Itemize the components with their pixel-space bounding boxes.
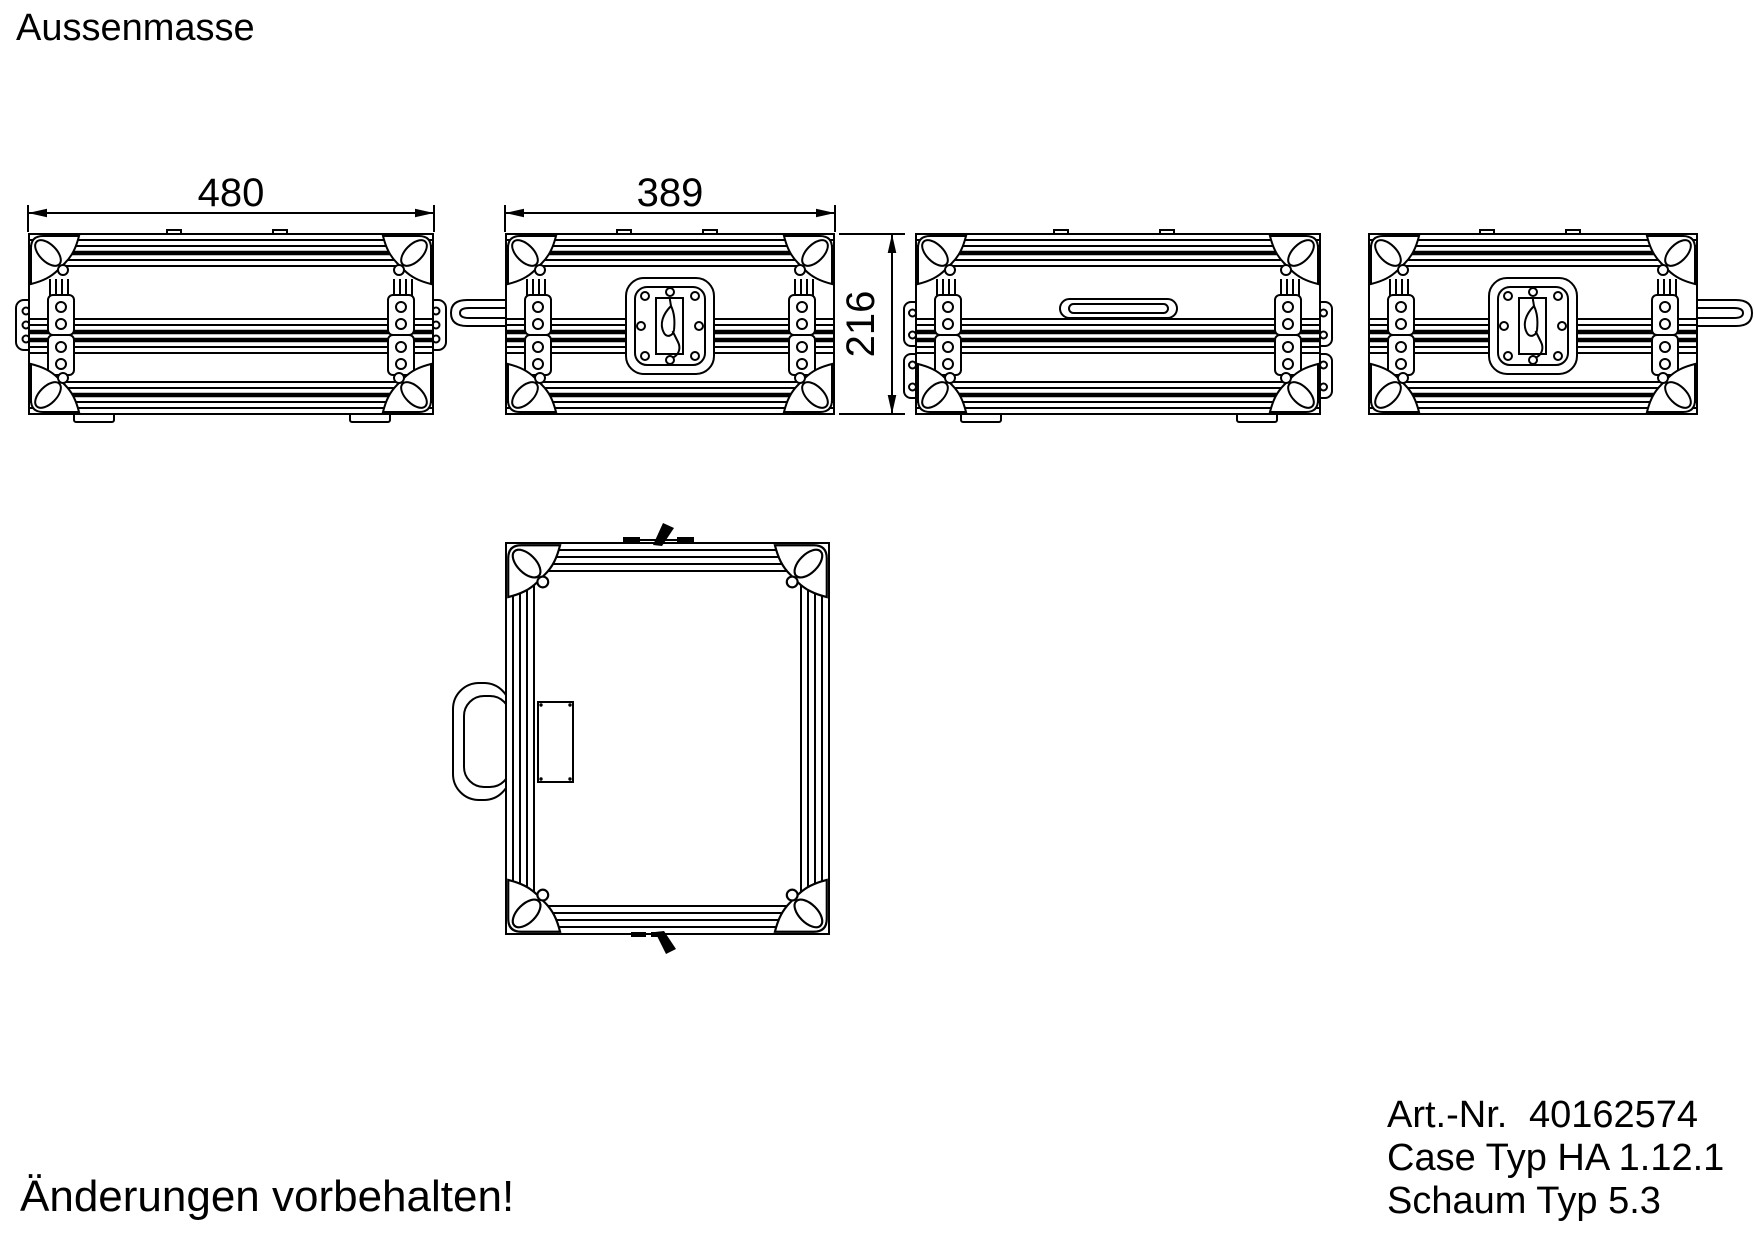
dim-side-width: 389 [505, 171, 835, 231]
article-number-row: Art.-Nr.40162574 [1387, 1094, 1724, 1137]
revision-note: Änderungen vorbehalten! [20, 1172, 514, 1222]
article-number-value: 40162574 [1529, 1094, 1698, 1136]
dim-height: 216 [839, 234, 904, 414]
view-top [453, 523, 829, 954]
article-number-label: Art.-Nr. [1387, 1094, 1529, 1137]
dim-front-width-value: 480 [198, 171, 265, 215]
view-front [16, 230, 446, 422]
part-info-block: Art.-Nr.40162574 Case Typ HA 1.12.1 Scha… [1387, 1094, 1724, 1223]
drawing-sheet: Aussenmasse [0, 0, 1754, 1240]
view-back [904, 230, 1332, 422]
latch-lever-top-icon [623, 523, 694, 546]
dim-side-width-value: 389 [637, 171, 704, 215]
recessed-handle-icon [1060, 299, 1177, 318]
butterfly-latch-icon [626, 278, 714, 374]
technical-drawing: 480 389 216 [0, 0, 1754, 1240]
case-type: Case Typ HA 1.12.1 [1387, 1137, 1724, 1180]
carry-handle-icon [453, 683, 510, 800]
view-side-right [451, 230, 834, 414]
dim-height-value: 216 [839, 291, 883, 358]
dim-front-width: 480 [28, 171, 434, 231]
foam-type: Schaum Typ 5.3 [1387, 1180, 1724, 1223]
view-side-left [1369, 230, 1752, 414]
butterfly-latch-icon [1489, 278, 1577, 374]
